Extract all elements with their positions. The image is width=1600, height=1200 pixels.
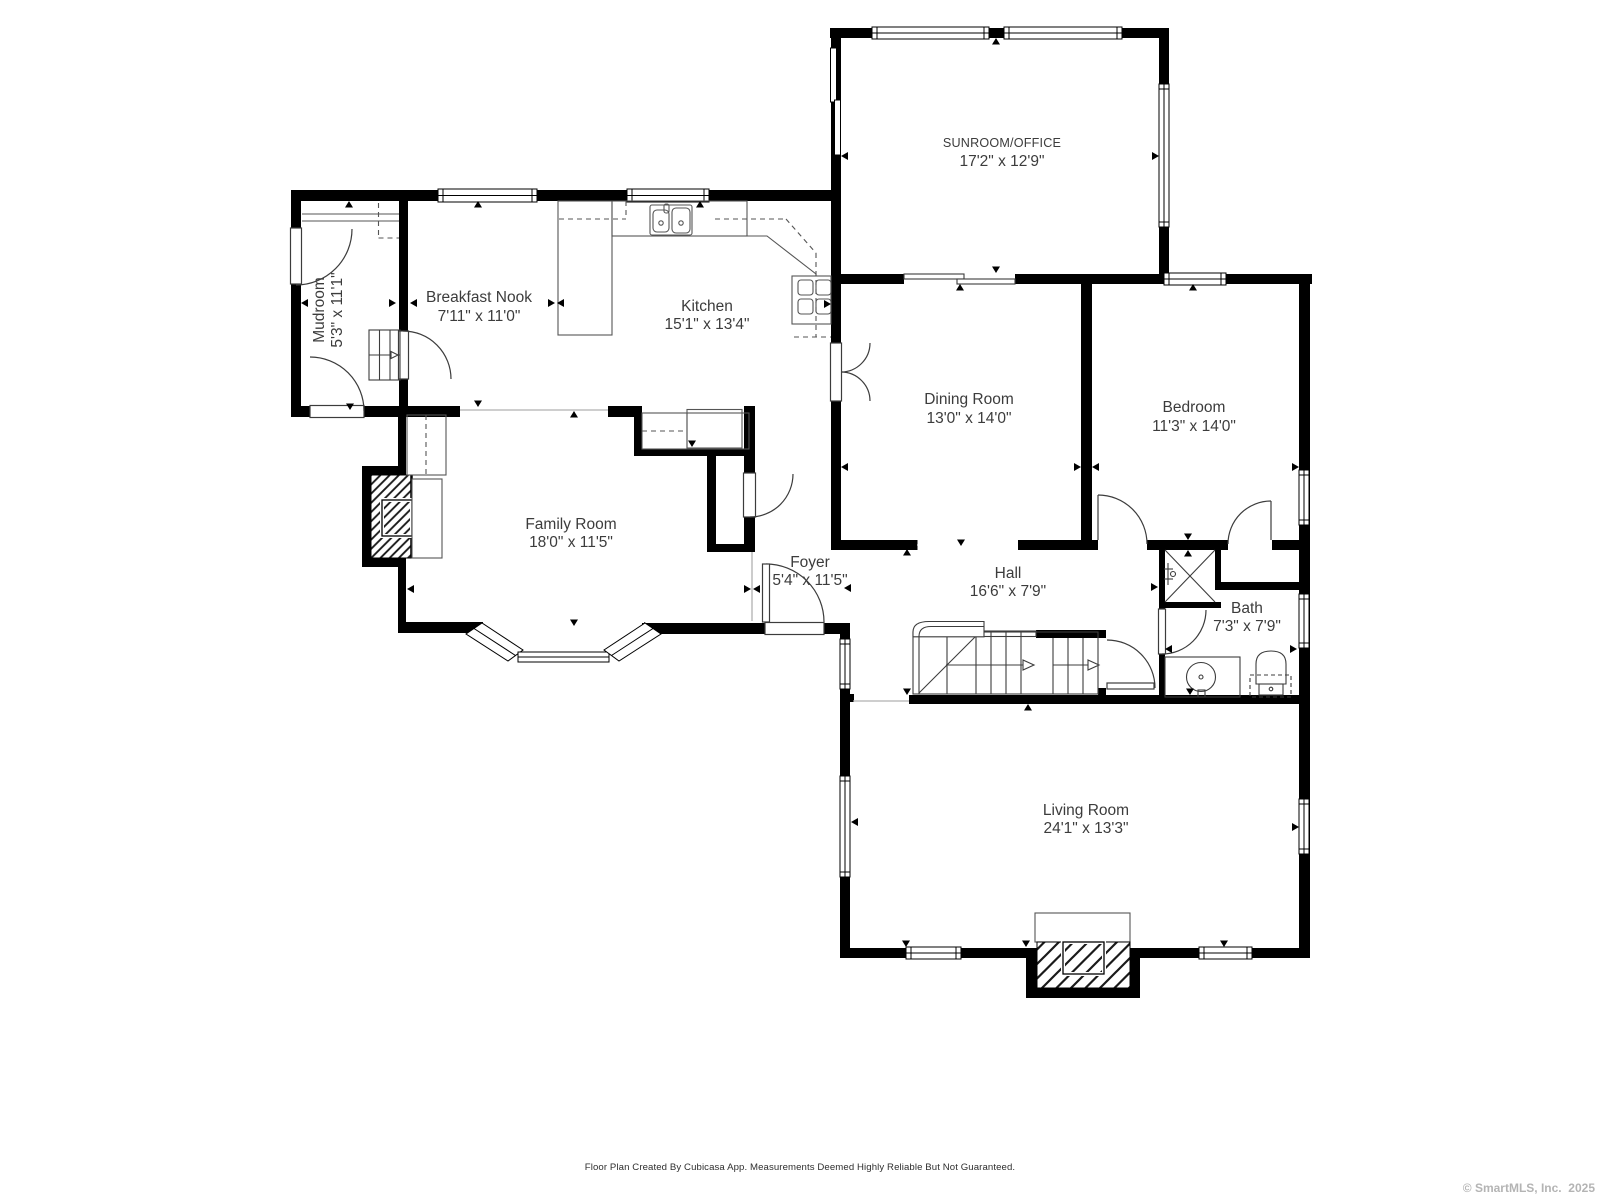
svg-text:24'1" x 13'3": 24'1" x 13'3"	[1043, 820, 1128, 837]
svg-text:7'3" x 7'9": 7'3" x 7'9"	[1213, 618, 1281, 635]
svg-text:Mudroom: Mudroom	[311, 277, 328, 342]
svg-text:Bath: Bath	[1231, 600, 1263, 617]
svg-text:15'1" x 13'4": 15'1" x 13'4"	[664, 316, 749, 333]
svg-text:SUNROOM/OFFICE: SUNROOM/OFFICE	[943, 136, 1061, 150]
svg-text:Kitchen: Kitchen	[681, 298, 733, 315]
svg-text:11'3" x 14'0": 11'3" x 14'0"	[1152, 418, 1236, 435]
svg-text:5'3" x 11'1": 5'3" x 11'1"	[329, 272, 346, 347]
svg-text:Floor Plan Created By Cubicasa: Floor Plan Created By Cubicasa App. Meas…	[585, 1162, 1015, 1173]
svg-text:7'11" x 11'0": 7'11" x 11'0"	[438, 308, 521, 325]
svg-text:13'0" x 14'0": 13'0" x 14'0"	[926, 410, 1011, 427]
svg-text:Hall: Hall	[995, 565, 1022, 582]
svg-text:Dining Room: Dining Room	[924, 391, 1014, 408]
svg-text:Bedroom: Bedroom	[1163, 399, 1226, 416]
svg-text:5'4" x 11'5": 5'4" x 11'5"	[772, 572, 847, 589]
svg-text:Foyer: Foyer	[790, 554, 830, 571]
svg-text:17'2" x 12'9": 17'2" x 12'9"	[959, 153, 1044, 170]
svg-text:© SmartMLS, Inc. 2025: © SmartMLS, Inc. 2025	[1463, 1181, 1596, 1195]
svg-text:Family Room: Family Room	[525, 516, 616, 533]
svg-text:Living Room: Living Room	[1043, 802, 1129, 819]
svg-text:Breakfast Nook: Breakfast Nook	[426, 289, 532, 306]
svg-text:16'6" x 7'9": 16'6" x 7'9"	[970, 583, 1046, 600]
svg-text:18'0" x 11'5": 18'0" x 11'5"	[529, 534, 613, 551]
